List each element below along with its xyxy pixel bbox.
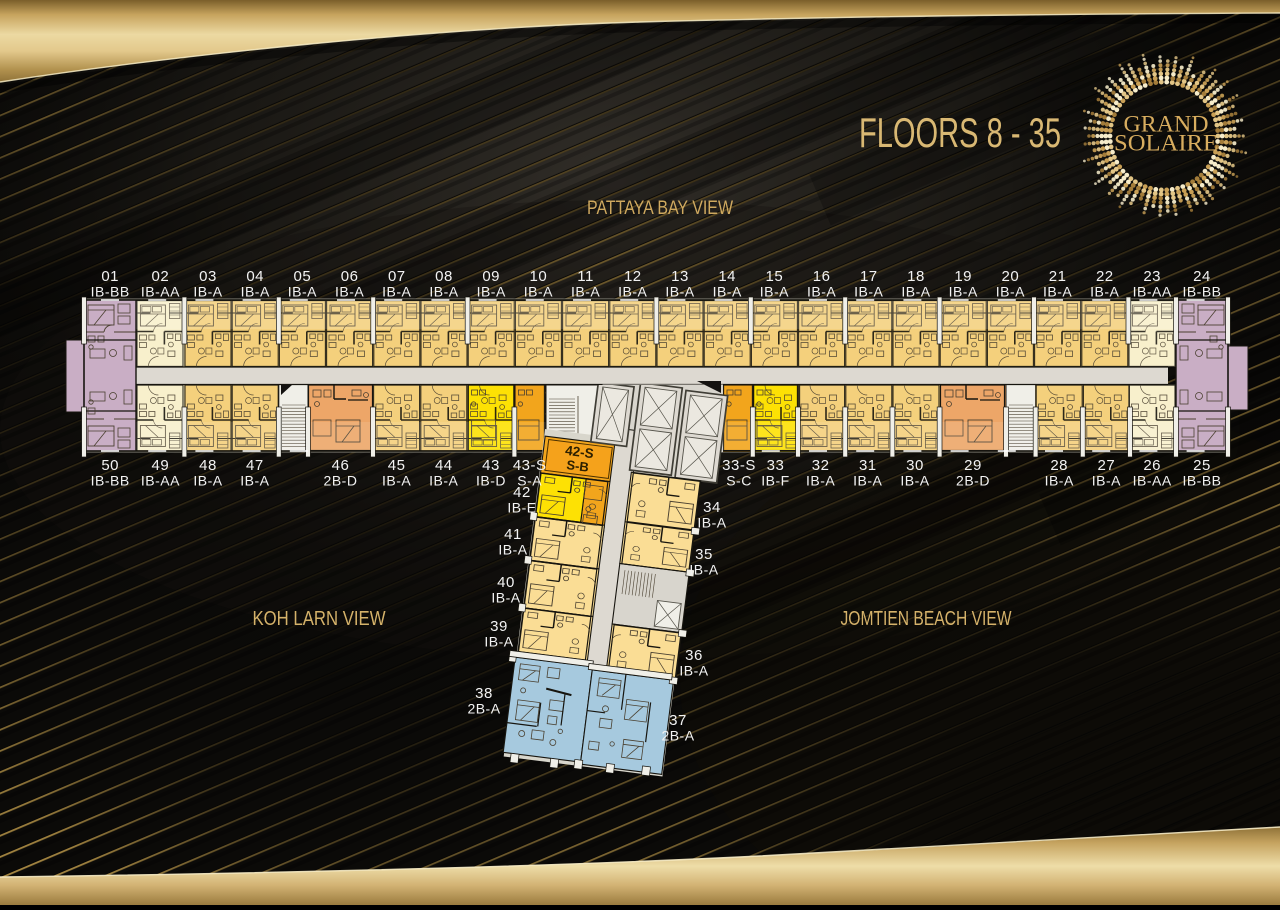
svg-text:IB-A: IB-A <box>498 542 527 558</box>
svg-text:IB-A: IB-A <box>193 284 222 300</box>
svg-text:47: 47 <box>246 457 264 474</box>
svg-text:IB-A: IB-A <box>429 473 458 489</box>
svg-text:IB-A: IB-A <box>288 284 317 300</box>
svg-text:IB-A: IB-A <box>1090 284 1119 300</box>
svg-text:08: 08 <box>435 268 453 285</box>
svg-text:IB-A: IB-A <box>429 284 458 300</box>
svg-text:IB-BB: IB-BB <box>91 473 130 489</box>
svg-text:IB-A: IB-A <box>679 663 708 679</box>
svg-text:IB-AA: IB-AA <box>141 473 180 489</box>
svg-text:IB-A: IB-A <box>477 284 506 300</box>
svg-text:13: 13 <box>671 268 689 285</box>
svg-text:45: 45 <box>388 457 406 474</box>
svg-text:29: 29 <box>964 457 982 474</box>
svg-text:IB-A: IB-A <box>240 473 269 489</box>
svg-text:48: 48 <box>199 457 217 474</box>
svg-text:IB-A: IB-A <box>996 284 1025 300</box>
svg-text:02: 02 <box>152 268 170 285</box>
svg-text:IB-A: IB-A <box>382 284 411 300</box>
svg-text:09: 09 <box>482 268 500 285</box>
svg-text:42: 42 <box>513 484 531 501</box>
svg-text:IB-A: IB-A <box>760 284 789 300</box>
svg-text:IB-A: IB-A <box>854 284 883 300</box>
svg-text:33-S: 33-S <box>722 457 756 474</box>
svg-text:38: 38 <box>475 685 493 702</box>
svg-text:2B-D: 2B-D <box>956 473 990 489</box>
svg-text:24: 24 <box>1193 268 1211 285</box>
svg-text:32: 32 <box>812 457 830 474</box>
svg-text:IB-A: IB-A <box>335 284 364 300</box>
svg-text:KOH LARN VIEW: KOH LARN VIEW <box>253 608 386 630</box>
svg-text:SOLAIRE: SOLAIRE <box>1114 131 1218 157</box>
svg-text:IB-A: IB-A <box>491 590 520 606</box>
svg-text:41: 41 <box>504 526 522 543</box>
svg-text:37: 37 <box>669 712 687 729</box>
svg-text:2B-A: 2B-A <box>661 728 694 744</box>
svg-text:20: 20 <box>1002 268 1020 285</box>
svg-text:25: 25 <box>1193 457 1211 474</box>
svg-text:IB-A: IB-A <box>901 284 930 300</box>
svg-text:S-C: S-C <box>726 473 752 489</box>
svg-text:IB-F: IB-F <box>761 473 789 489</box>
svg-text:2B-A: 2B-A <box>467 701 500 717</box>
svg-text:FLOORS 8 - 35: FLOORS 8 - 35 <box>859 109 1061 156</box>
svg-text:11: 11 <box>577 268 594 285</box>
svg-text:39: 39 <box>490 618 508 635</box>
svg-text:IB-AA: IB-AA <box>141 284 180 300</box>
svg-text:IB-A: IB-A <box>900 473 929 489</box>
svg-text:30: 30 <box>906 457 924 474</box>
svg-text:IB-A: IB-A <box>484 634 513 650</box>
svg-text:IB-BB: IB-BB <box>91 284 130 300</box>
svg-text:IB-A: IB-A <box>241 284 270 300</box>
svg-text:IB-BB: IB-BB <box>1182 284 1221 300</box>
svg-text:IB-A: IB-A <box>1045 473 1074 489</box>
svg-text:04: 04 <box>246 268 264 285</box>
svg-text:12: 12 <box>624 268 642 285</box>
svg-text:33: 33 <box>767 457 785 474</box>
svg-text:23: 23 <box>1143 268 1161 285</box>
svg-text:49: 49 <box>152 457 170 474</box>
svg-text:22: 22 <box>1096 268 1114 285</box>
svg-text:IB-AA: IB-AA <box>1133 284 1172 300</box>
svg-text:IB-A: IB-A <box>1043 284 1072 300</box>
svg-text:43: 43 <box>482 457 500 474</box>
svg-text:IB-A: IB-A <box>571 284 600 300</box>
svg-text:IB-A: IB-A <box>806 473 835 489</box>
svg-text:15: 15 <box>766 268 784 285</box>
svg-text:IB-A: IB-A <box>665 284 694 300</box>
svg-text:JOMTIEN BEACH VIEW: JOMTIEN BEACH VIEW <box>841 608 1012 630</box>
svg-text:S-B: S-B <box>566 457 590 475</box>
svg-text:IB-A: IB-A <box>193 473 222 489</box>
svg-text:06: 06 <box>341 268 359 285</box>
svg-text:35: 35 <box>695 546 713 563</box>
svg-text:17: 17 <box>860 268 878 285</box>
svg-text:27: 27 <box>1098 457 1116 474</box>
svg-text:IB-A: IB-A <box>524 284 553 300</box>
svg-text:IB-BB: IB-BB <box>1182 473 1221 489</box>
svg-text:IB-D: IB-D <box>476 473 506 489</box>
svg-text:18: 18 <box>907 268 925 285</box>
svg-text:50: 50 <box>101 457 119 474</box>
svg-text:2B-D: 2B-D <box>324 473 358 489</box>
svg-text:10: 10 <box>530 268 548 285</box>
svg-text:21: 21 <box>1049 268 1067 285</box>
svg-text:44: 44 <box>435 457 453 474</box>
svg-text:IB-A: IB-A <box>697 515 726 531</box>
svg-text:05: 05 <box>294 268 312 285</box>
svg-text:46: 46 <box>332 457 350 474</box>
svg-text:PATTAYA BAY VIEW: PATTAYA BAY VIEW <box>587 198 733 219</box>
svg-text:IB-A: IB-A <box>807 284 836 300</box>
svg-text:03: 03 <box>199 268 217 285</box>
svg-text:28: 28 <box>1050 457 1068 474</box>
svg-text:07: 07 <box>388 268 406 285</box>
svg-text:31: 31 <box>859 457 877 474</box>
svg-text:IB-AA: IB-AA <box>1133 473 1172 489</box>
svg-text:16: 16 <box>813 268 831 285</box>
svg-text:19: 19 <box>954 268 972 285</box>
svg-text:43-S: 43-S <box>513 457 547 474</box>
svg-text:IB-A: IB-A <box>382 473 411 489</box>
svg-text:14: 14 <box>718 268 736 285</box>
svg-text:IB-A: IB-A <box>853 473 882 489</box>
svg-text:40: 40 <box>497 574 515 591</box>
svg-text:IB-A: IB-A <box>713 284 742 300</box>
svg-text:01: 01 <box>101 268 119 285</box>
svg-text:IB-A: IB-A <box>1092 473 1121 489</box>
svg-text:IB-A: IB-A <box>618 284 647 300</box>
svg-text:26: 26 <box>1143 457 1161 474</box>
svg-text:IB-A: IB-A <box>689 562 718 578</box>
svg-text:IB-E: IB-E <box>507 500 536 516</box>
svg-text:IB-A: IB-A <box>949 284 978 300</box>
svg-text:36: 36 <box>685 647 703 664</box>
svg-text:34: 34 <box>703 499 721 516</box>
